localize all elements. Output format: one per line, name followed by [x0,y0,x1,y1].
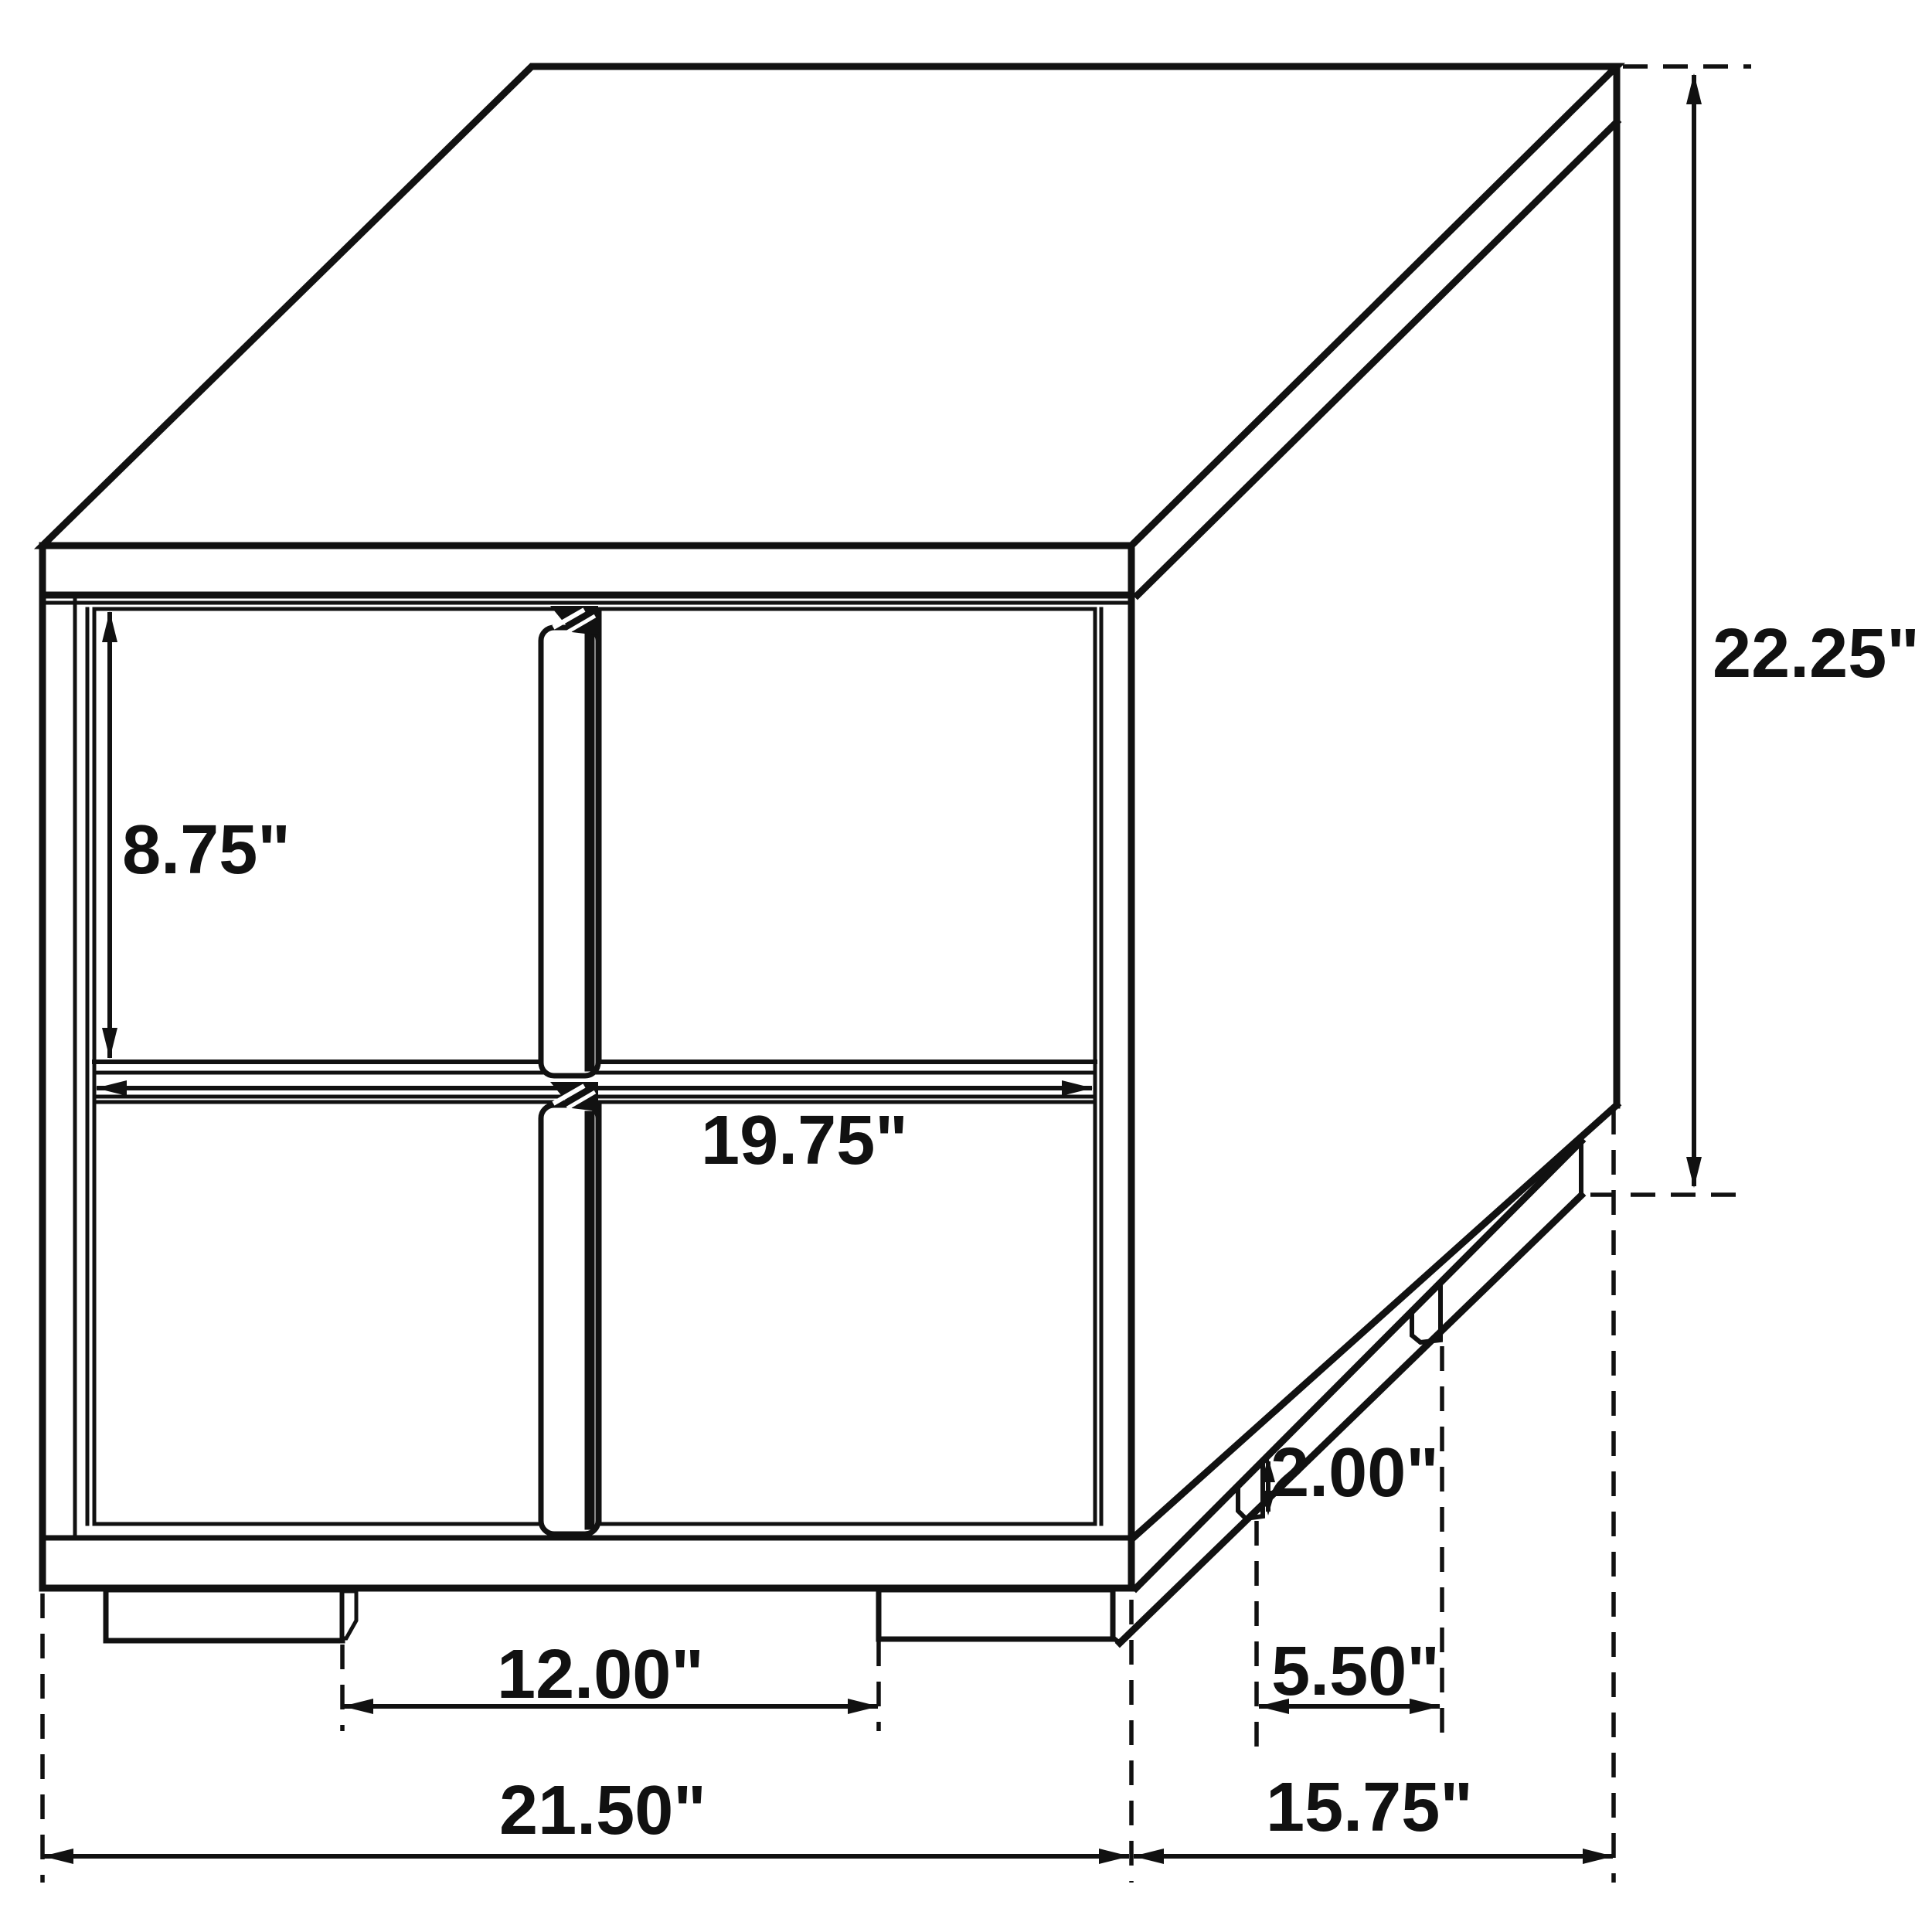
arrowhead-up [1686,73,1702,104]
top-surface [43,66,1617,546]
dimension-drawing-canvas: 8.75" 19.75" 22.25" 12.00" 21.50" 15.75"… [0,0,1932,1932]
label-overall-height: 22.25" [1713,615,1920,692]
front-right-foot [879,1590,1113,1639]
arrowhead-right [1583,1849,1614,1864]
dimension-drawer-height [102,611,117,1059]
arrowhead-left [1133,1849,1164,1864]
arrowhead-left [43,1849,73,1864]
arrowhead-left [96,1080,127,1096]
side-plinth-top-edge [1136,1141,1581,1588]
arrowhead-right [848,1699,879,1714]
nightstand-dimension-diagram: 8.75" 19.75" 22.25" 12.00" 21.50" 15.75"… [0,0,1932,1932]
label-side-feet-gap: 5.50" [1271,1633,1440,1710]
dimension-overall-width [43,1849,1130,1864]
arrowhead-down [102,1028,117,1059]
label-front-feet-gap: 12.00" [497,1636,704,1713]
arrowhead-left [342,1699,373,1714]
label-depth: 15.75" [1266,1769,1473,1846]
label-foot-height: 2.00" [1270,1434,1439,1512]
lower-drawer-handle [541,1082,598,1534]
arrowhead-up [102,611,117,642]
dimension-depth [1133,1849,1614,1864]
dimension-labels: 8.75" 19.75" 22.25" 12.00" 21.50" 15.75"… [122,615,1920,1849]
dimension-overall-height [1686,73,1702,1188]
arrowhead-right [1062,1080,1093,1096]
side-plinth-bottom-edge [1120,1196,1581,1643]
front-left-foot [106,1590,342,1641]
arrowhead-right [1099,1849,1130,1864]
arrowhead-down [1686,1157,1702,1188]
label-drawer-width: 19.75" [701,1102,908,1179]
label-drawer-height: 8.75" [122,811,291,889]
label-overall-width: 21.50" [499,1772,706,1849]
front-left-foot-side [342,1591,356,1638]
upper-drawer-handle [541,606,598,1076]
